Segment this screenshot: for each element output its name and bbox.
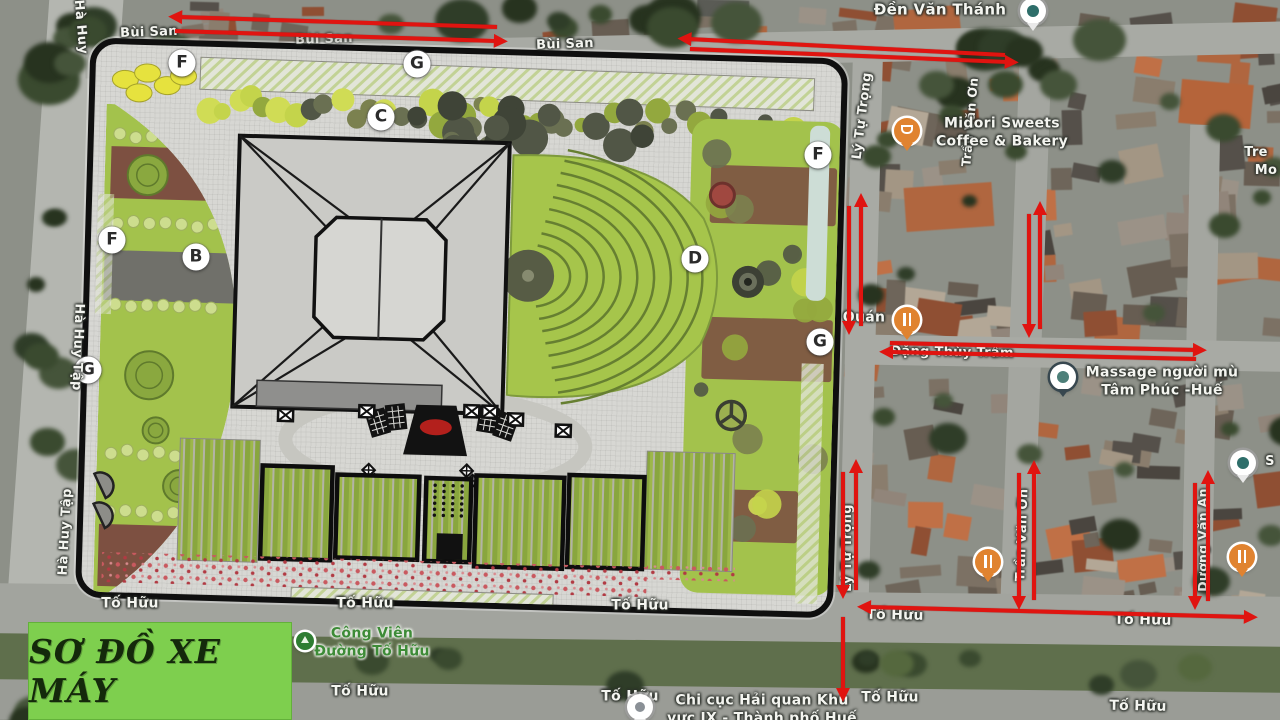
plan-marker-F: F bbox=[99, 227, 126, 254]
tree-canopy bbox=[711, 2, 762, 43]
tree-canopy bbox=[880, 650, 914, 677]
tree-canopy bbox=[959, 650, 981, 668]
street-label: Tre bbox=[1244, 145, 1268, 161]
tree-canopy bbox=[24, 343, 59, 371]
house-roof bbox=[1118, 144, 1164, 186]
massage-tam-phuc-label[interactable]: Massage người mù Tâm Phúc -Huế bbox=[1086, 365, 1238, 400]
house-roof bbox=[873, 489, 906, 507]
house-roof bbox=[900, 565, 942, 579]
plan-marker-B: B bbox=[183, 244, 210, 271]
route-arrow bbox=[1038, 212, 1042, 329]
tree-canopy bbox=[1143, 304, 1165, 321]
street-label: Bùi San bbox=[120, 24, 178, 42]
tree-canopy bbox=[857, 561, 879, 579]
house-roof bbox=[943, 513, 972, 541]
house-roof bbox=[1053, 223, 1073, 237]
house-roof bbox=[1116, 554, 1166, 583]
street-label: Tố Hữu bbox=[861, 689, 919, 707]
plan-marker-G: G bbox=[807, 329, 834, 356]
route-arrow bbox=[841, 472, 845, 588]
tree-canopy bbox=[502, 0, 538, 23]
route-arrow bbox=[854, 470, 858, 590]
tree-canopy bbox=[1115, 462, 1134, 477]
house-roof bbox=[927, 453, 956, 483]
route-arrow bbox=[859, 204, 863, 326]
house-roof bbox=[1051, 168, 1073, 191]
route-arrow bbox=[1027, 214, 1031, 327]
house-roof bbox=[1071, 163, 1102, 184]
plan-marker-C: C bbox=[368, 104, 395, 131]
house-roof bbox=[1065, 444, 1091, 460]
tree-canopy bbox=[934, 393, 953, 408]
house-roof bbox=[1262, 80, 1280, 104]
house-roof bbox=[1137, 466, 1181, 480]
tree-canopy bbox=[1120, 660, 1157, 689]
house-roof bbox=[1149, 407, 1178, 428]
house-roof bbox=[302, 7, 324, 16]
house-roof bbox=[947, 281, 978, 297]
plan-marker-F: F bbox=[805, 142, 832, 169]
house-roof bbox=[1253, 469, 1280, 508]
house-roof bbox=[908, 502, 944, 528]
route-arrow bbox=[841, 617, 845, 691]
route-arrow bbox=[1017, 473, 1021, 599]
house-roof bbox=[251, 13, 270, 32]
tree-canopy bbox=[589, 5, 613, 24]
den-van-thanh-label[interactable]: Đền Văn Thánh bbox=[874, 1, 1007, 20]
tree-canopy bbox=[1160, 93, 1180, 109]
house-roof bbox=[1115, 111, 1156, 130]
massage-tam-phuc-icon[interactable] bbox=[1050, 364, 1076, 390]
plan-marker-F: F bbox=[169, 50, 196, 77]
route-arrow bbox=[847, 206, 851, 324]
restaurant-east-icon[interactable] bbox=[1229, 544, 1255, 570]
tree-canopy bbox=[435, 648, 462, 670]
plan-marker-D: D bbox=[682, 246, 709, 273]
tree-canopy bbox=[1089, 675, 1113, 695]
health-place-icon[interactable] bbox=[1230, 450, 1256, 476]
tree-canopy bbox=[1178, 654, 1212, 681]
house-roof bbox=[911, 526, 932, 556]
diagram-title-box: SƠ ĐỒ XE MÁY bbox=[28, 622, 292, 720]
house-roof bbox=[1089, 469, 1118, 505]
restaurant-south-icon[interactable] bbox=[975, 549, 1001, 575]
midori-sweets-label[interactable]: Midori Sweets Coffee & Bakery bbox=[936, 116, 1068, 151]
cong-vien-to-huu-label[interactable]: Công Viên Đường Tố Hữu bbox=[314, 626, 429, 661]
tree-canopy bbox=[1209, 213, 1240, 238]
street-label: S bbox=[1265, 454, 1275, 470]
house-roof bbox=[1263, 318, 1280, 339]
route-arrow bbox=[1032, 471, 1036, 600]
chi-cuc-hai-quan-icon[interactable] bbox=[627, 694, 653, 720]
tree-canopy bbox=[1253, 190, 1271, 204]
site-plan-drawing bbox=[81, 44, 849, 619]
street-label: Hà Huy Tập bbox=[67, 303, 86, 391]
street-label: Bùi San bbox=[536, 36, 594, 54]
street-label: Tố Hữu bbox=[1109, 698, 1167, 717]
midori-sweets-icon[interactable] bbox=[894, 118, 920, 144]
house-roof bbox=[1134, 55, 1163, 78]
house-roof bbox=[1117, 214, 1167, 246]
house-roof bbox=[798, 6, 826, 25]
site-plan-overlay bbox=[75, 37, 848, 618]
route-arrow bbox=[1193, 483, 1197, 599]
tree-canopy bbox=[1221, 422, 1238, 436]
tree-canopy bbox=[27, 277, 45, 292]
map-screenshot: FGCFBGDFG Hà HuyBùi SanBùi SanBùi SanLý … bbox=[0, 0, 1280, 720]
tree-canopy bbox=[1100, 519, 1140, 551]
house-roof bbox=[1044, 264, 1064, 280]
house-roof bbox=[1083, 310, 1118, 337]
house-roof bbox=[1083, 532, 1100, 548]
tree-canopy bbox=[30, 428, 65, 456]
tree-canopy bbox=[873, 408, 895, 426]
cong-vien-to-huu-icon[interactable] bbox=[296, 632, 314, 650]
tree-canopy bbox=[435, 0, 489, 42]
street-label: Tố Hữu bbox=[336, 595, 394, 613]
street-label: Tố Hữu bbox=[331, 683, 389, 701]
tree-canopy bbox=[929, 423, 968, 454]
tree-canopy bbox=[858, 651, 877, 667]
house-roof bbox=[1149, 539, 1173, 553]
chi-cuc-hai-quan-label[interactable]: Chi cục Hải quan Khu vực IX - Thành phố … bbox=[667, 693, 857, 720]
tree-canopy bbox=[1098, 160, 1126, 183]
tree-canopy bbox=[897, 267, 914, 281]
tree-canopy bbox=[1258, 525, 1280, 546]
plan-marker-G: G bbox=[404, 51, 431, 78]
street-label: Mo bbox=[1255, 163, 1277, 179]
house-roof bbox=[1267, 111, 1280, 123]
house-roof bbox=[190, 2, 219, 11]
tree-canopy bbox=[1040, 70, 1077, 99]
tree-canopy bbox=[919, 71, 954, 99]
street-label: Tố Hữu bbox=[101, 595, 159, 613]
den-van-thanh-icon[interactable] bbox=[1020, 0, 1046, 24]
house-roof bbox=[838, 8, 877, 22]
house-roof bbox=[1032, 560, 1063, 576]
route-arrow bbox=[1206, 481, 1210, 601]
diagram-title: SƠ ĐỒ XE MÁY bbox=[29, 632, 291, 710]
tree-canopy bbox=[988, 71, 1022, 99]
street-label: Tố Hữu bbox=[611, 597, 669, 615]
house-roof bbox=[914, 298, 963, 338]
house-roof bbox=[1138, 582, 1156, 596]
house-roof bbox=[904, 182, 995, 232]
quan-restaurant-icon[interactable] bbox=[894, 307, 920, 333]
